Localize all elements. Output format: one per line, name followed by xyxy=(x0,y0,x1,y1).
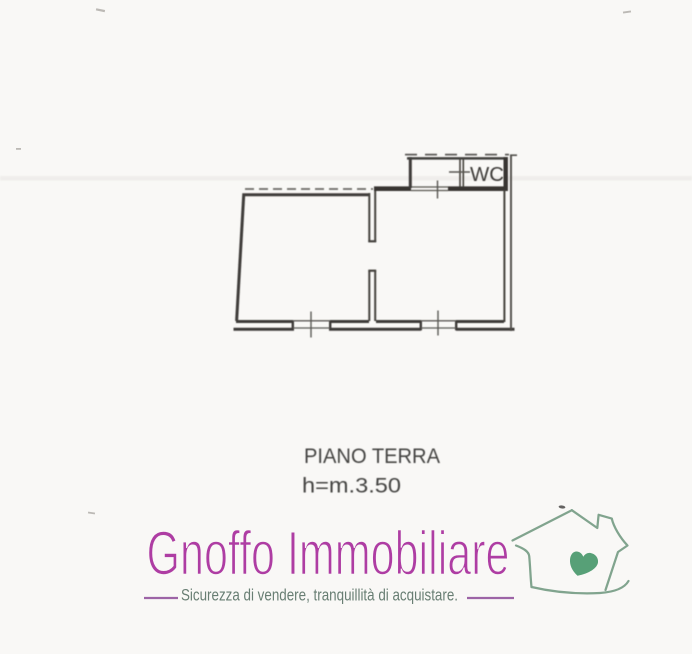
svg-text:PIANO TERRA: PIANO TERRA xyxy=(304,444,441,468)
svg-text:Gnoffo Immobiliare: Gnoffo Immobiliare xyxy=(147,520,510,589)
svg-text:Sicurezza di vendere, tranquil: Sicurezza di vendere, tranquillità di ac… xyxy=(181,586,458,605)
svg-text:h=m.3.50: h=m.3.50 xyxy=(302,474,401,498)
svg-text:WC: WC xyxy=(470,163,504,186)
